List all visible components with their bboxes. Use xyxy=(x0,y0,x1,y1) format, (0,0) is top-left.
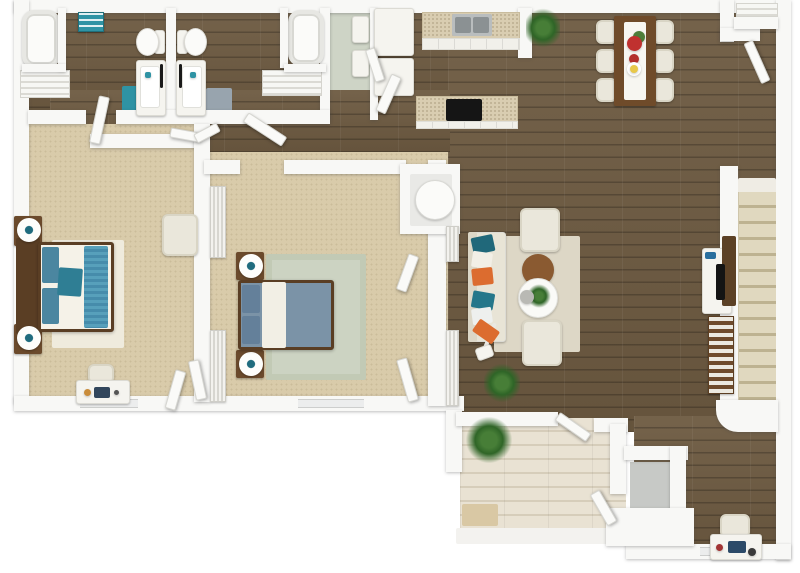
armchair-bottom xyxy=(522,320,562,366)
wall-entry-pad-bottom xyxy=(606,508,694,546)
plant-living xyxy=(484,362,520,404)
tub-left-wall-bottom xyxy=(22,64,66,72)
toilet-left-bowl xyxy=(136,28,159,56)
wall-entry-pad-right xyxy=(670,446,686,516)
bathtub-left xyxy=(22,10,60,68)
kitchen-island-front xyxy=(416,121,518,129)
cooktop xyxy=(446,99,482,121)
closet-louver-d xyxy=(446,330,459,406)
wall-entry-vestibule xyxy=(720,28,760,41)
office-laptop xyxy=(728,541,746,553)
watering-can xyxy=(520,290,534,304)
vanity-left-faucet xyxy=(160,64,163,88)
lamp-left-bottom xyxy=(17,326,41,350)
plate-food-yellow xyxy=(630,65,638,73)
refrigerator xyxy=(374,8,414,56)
desk-item-gold xyxy=(84,389,91,396)
dining-chair-right-3 xyxy=(653,78,674,102)
linen-shelf-right xyxy=(262,70,322,96)
stairs-landing xyxy=(716,400,778,432)
wall-bedroom-middle-top-b xyxy=(284,160,406,174)
wall-bath-divider xyxy=(166,8,176,114)
lamp-middle-top xyxy=(239,254,263,278)
vanity-left-soap xyxy=(145,72,151,78)
vanity-right-faucet xyxy=(179,64,182,88)
wall-bath-south-left xyxy=(28,110,86,124)
bed-middle-blanket-fold xyxy=(262,282,286,348)
toilet-right-bowl xyxy=(184,28,207,56)
bed-left-headboard xyxy=(16,238,40,334)
tub-left-wall-right xyxy=(58,8,66,70)
window-bedroom-middle xyxy=(298,399,364,408)
tub-right-wall-bottom xyxy=(284,64,326,72)
lamp-middle-bottom xyxy=(239,352,263,376)
wall-right xyxy=(776,0,791,560)
kitchen-sink-basin-b xyxy=(473,17,489,33)
water-heater xyxy=(415,180,455,220)
towel-shelf-teal xyxy=(78,12,104,32)
bed-left-runner xyxy=(84,246,108,328)
console-decor-blue xyxy=(705,252,716,259)
centerpiece-flowers xyxy=(627,36,642,51)
armchair-top xyxy=(520,208,560,252)
floor-entry-pad xyxy=(630,462,674,514)
office-desk-item-red xyxy=(716,544,723,551)
lamp-left-top xyxy=(17,218,41,242)
kitchen-cabinet-fronts xyxy=(422,38,520,50)
bed-left-lumbar-pillow xyxy=(57,267,83,297)
bookshelf xyxy=(708,316,734,394)
plant-patio xyxy=(466,416,512,464)
bathtub-right xyxy=(288,10,324,66)
dining-chair-right-2 xyxy=(653,49,674,73)
tub-right-wall-left xyxy=(280,8,288,68)
patio-bench xyxy=(462,504,498,526)
kitchen-sink-basin-a xyxy=(455,17,471,33)
bed-left-pillow-a xyxy=(42,247,59,283)
closet-louver-a xyxy=(210,186,226,258)
staircase xyxy=(738,192,776,400)
walkin-shelf-a xyxy=(352,16,369,43)
desk-item-small xyxy=(114,390,119,395)
dining-chair-right-1 xyxy=(653,20,674,44)
wall-bedroom-middle-top-a xyxy=(204,160,240,174)
tv-screen xyxy=(716,264,725,300)
bed-middle-pillow-b xyxy=(242,316,260,344)
armchair-bedroom-left xyxy=(162,214,198,256)
closet-louver-b xyxy=(210,330,226,402)
floor-plan xyxy=(0,0,800,573)
bed-middle-pillow-a xyxy=(242,285,260,313)
closet-louver-c xyxy=(446,226,459,262)
laptop-bedroom-left xyxy=(94,387,110,398)
office-desk-item-dark xyxy=(748,548,756,556)
sofa-pillow-orange-1 xyxy=(471,267,494,286)
patio-bottom-ledge xyxy=(456,528,628,544)
vanity-right-soap xyxy=(190,72,196,78)
linen-shelf-left xyxy=(20,70,70,98)
plant-dining xyxy=(526,6,560,50)
entry-closet-shelves xyxy=(736,3,778,17)
wall-entry-closet-bottom xyxy=(734,17,778,29)
